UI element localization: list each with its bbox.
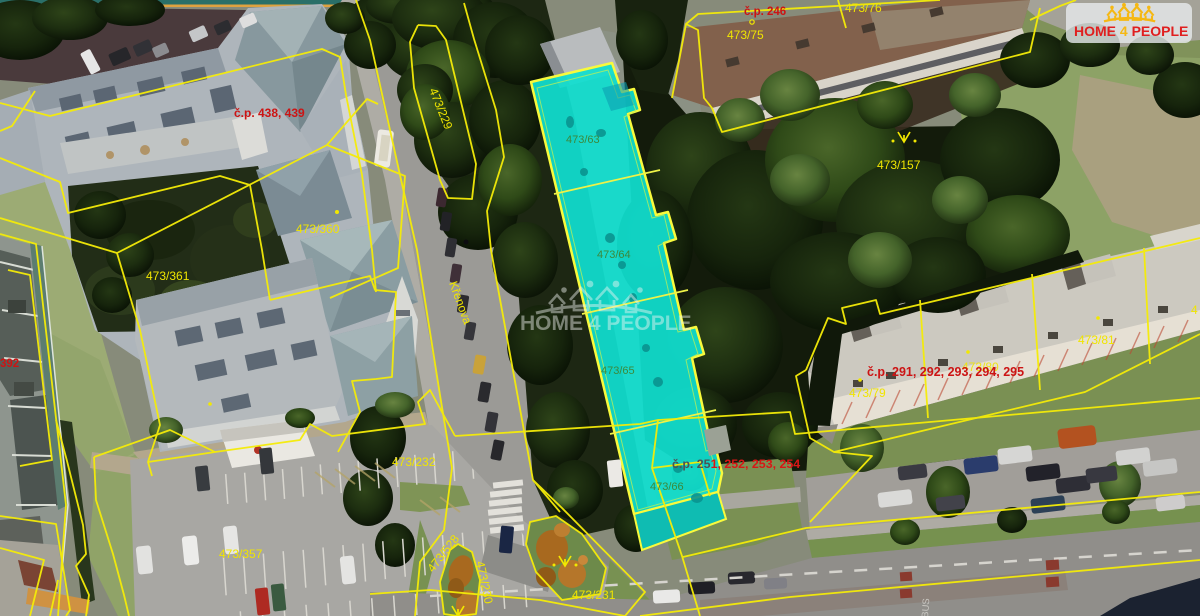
- svg-text:č.p. 438, 439: č.p. 438, 439: [234, 106, 305, 120]
- svg-text:473/360: 473/360: [296, 222, 340, 236]
- svg-text:č.p. 246: č.p. 246: [744, 6, 786, 18]
- svg-text:473/157: 473/157: [877, 158, 921, 172]
- svg-text:č.p. 291, 292, 293, 294, 295: č.p. 291, 292, 293, 294, 295: [867, 365, 1024, 379]
- svg-text:473/361: 473/361: [146, 269, 190, 283]
- svg-text:392: 392: [0, 358, 19, 370]
- svg-text:473/76: 473/76: [845, 1, 882, 15]
- svg-text:HOME 4 PEOPLE: HOME 4 PEOPLE: [520, 312, 692, 335]
- svg-text:473/64: 473/64: [597, 249, 631, 261]
- svg-text:473/357: 473/357: [219, 547, 263, 561]
- svg-text:BUS: BUS: [920, 598, 932, 616]
- svg-text:473/75: 473/75: [727, 28, 764, 42]
- svg-text:473/79: 473/79: [849, 386, 886, 400]
- svg-text:HOME 4 PEOPLE: HOME 4 PEOPLE: [1074, 23, 1188, 39]
- svg-text:4: 4: [1191, 303, 1198, 317]
- svg-text:473/232: 473/232: [392, 455, 436, 469]
- svg-text:473/81: 473/81: [1078, 333, 1115, 347]
- svg-text:473/231: 473/231: [572, 588, 616, 602]
- svg-text:473/63: 473/63: [566, 134, 600, 146]
- svg-text:č.p. 251, 252, 253, 254: č.p. 251, 252, 253, 254: [672, 457, 800, 471]
- svg-text:473/65: 473/65: [601, 365, 635, 377]
- svg-text:473/66: 473/66: [650, 481, 684, 493]
